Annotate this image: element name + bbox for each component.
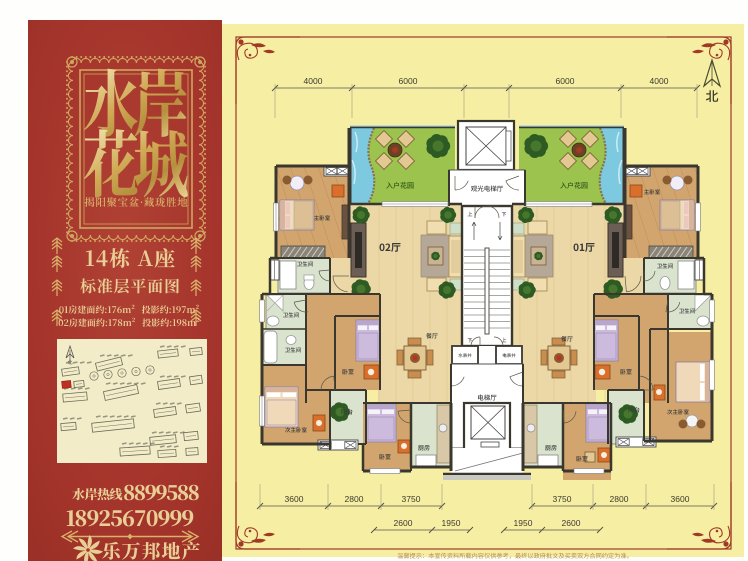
svg-text:6000: 6000 <box>556 76 575 86</box>
svg-text:3600: 3600 <box>285 494 304 504</box>
svg-text:1950: 1950 <box>514 518 533 528</box>
svg-text:1950: 1950 <box>442 518 461 528</box>
svg-text:2800: 2800 <box>345 494 364 504</box>
svg-text:4000: 4000 <box>304 76 323 86</box>
svg-text:4000: 4000 <box>650 76 669 86</box>
svg-text:2600: 2600 <box>562 518 581 528</box>
svg-text:3750: 3750 <box>402 494 421 504</box>
svg-text:3750: 3750 <box>553 494 572 504</box>
svg-text:2600: 2600 <box>394 518 413 528</box>
svg-text:2800: 2800 <box>610 494 629 504</box>
svg-text:3600: 3600 <box>671 494 690 504</box>
svg-text:6000: 6000 <box>399 76 418 86</box>
